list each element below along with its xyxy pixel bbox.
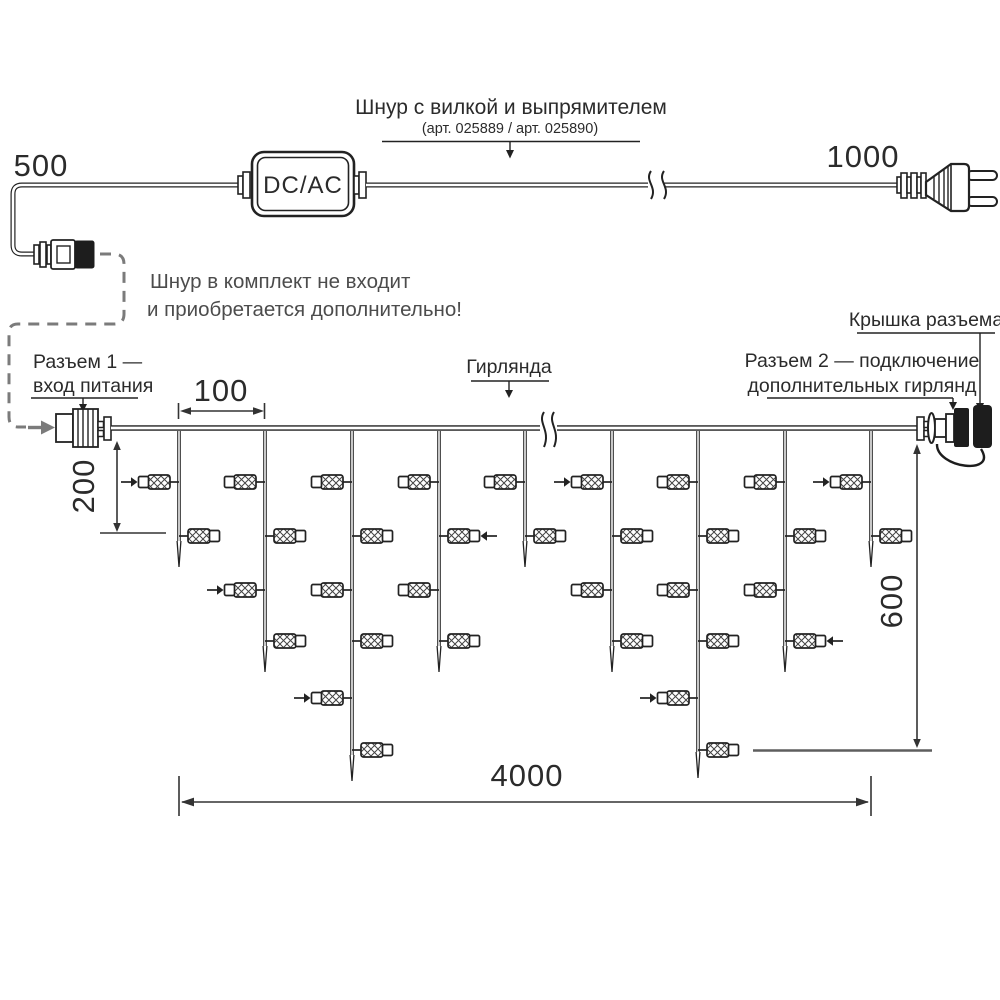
garland-callout: Гирлянда bbox=[466, 356, 552, 398]
garland-drop bbox=[121, 431, 220, 567]
lamp-icon bbox=[352, 743, 393, 757]
dashed-connection-path bbox=[9, 254, 124, 435]
lamp-icon bbox=[265, 529, 306, 543]
adapter-label: DC/AC bbox=[263, 172, 343, 199]
garland-drop bbox=[485, 431, 566, 567]
lamp-icon bbox=[225, 475, 266, 489]
dim-cord-left-value: 500 bbox=[14, 148, 69, 183]
note-line1: Шнур в комплект не входит bbox=[150, 270, 411, 293]
cord-title: Шнур с вилкой и выпрямителем bbox=[355, 96, 667, 119]
garland-drop bbox=[813, 431, 912, 567]
lamp-icon bbox=[572, 475, 613, 489]
lamp-icon bbox=[439, 529, 480, 543]
drop-needle-tip bbox=[610, 646, 614, 672]
garland-drop bbox=[207, 431, 306, 672]
lamp-icon bbox=[698, 634, 739, 648]
connector2-callout: Разъем 2 — подключение дополнительных ги… bbox=[745, 350, 980, 410]
cord-break-icon bbox=[649, 171, 666, 199]
lamp-icon bbox=[352, 529, 393, 543]
connector2-label-line1: Разъем 2 — подключение bbox=[745, 350, 980, 372]
dim-600-value: 600 bbox=[874, 574, 909, 629]
gray-arrowhead-icon bbox=[41, 421, 55, 435]
garland-connector2 bbox=[917, 405, 992, 466]
callout-arrowhead-icon bbox=[506, 150, 514, 159]
dim-cord-right-value: 1000 bbox=[827, 139, 900, 174]
lamp-icon bbox=[225, 583, 266, 597]
lamp-icon bbox=[658, 475, 699, 489]
garland-drop bbox=[554, 431, 653, 672]
connector1-callout: Разъем 1 — вход питания bbox=[31, 351, 153, 412]
lamp-icon bbox=[658, 691, 699, 705]
connector2-label-line2: дополнительных гирлянд bbox=[748, 375, 978, 397]
connector1-label-line2: вход питания bbox=[33, 375, 153, 397]
diagram-canvas: Шнур с вилкой и выпрямителем (арт. 02588… bbox=[0, 0, 1000, 1000]
garland-diagram: Шнур с вилкой и выпрямителем (арт. 02588… bbox=[0, 0, 1000, 1000]
lamp-icon bbox=[399, 475, 440, 489]
drop-needle-tip bbox=[869, 541, 873, 567]
lamp-icon bbox=[658, 583, 699, 597]
flash-arrow-icon bbox=[554, 477, 571, 487]
connector1-label-line1: Разъем 1 — bbox=[33, 351, 143, 373]
cord-subtitle: (арт. 025889 / арт. 025890) bbox=[422, 121, 598, 137]
garland-drop bbox=[399, 431, 498, 672]
flash-arrow-icon bbox=[640, 693, 657, 703]
lamp-icon bbox=[785, 529, 826, 543]
dim-4000-value: 4000 bbox=[491, 758, 564, 793]
lamp-icon bbox=[265, 634, 306, 648]
flash-arrow-icon bbox=[827, 636, 844, 646]
drop-needle-tip bbox=[350, 755, 354, 781]
lamp-icon bbox=[612, 634, 653, 648]
lamp-icon bbox=[572, 583, 613, 597]
dim-100: 100 bbox=[179, 373, 265, 419]
drop-needle-tip bbox=[696, 752, 700, 778]
drop-needle-tip bbox=[523, 541, 527, 567]
lamp-icon bbox=[179, 529, 220, 543]
garland-label: Гирлянда bbox=[466, 356, 552, 378]
lamp-icon bbox=[745, 475, 786, 489]
lamp-icon bbox=[612, 529, 653, 543]
lamp-icon bbox=[399, 583, 440, 597]
cord-end-connector bbox=[34, 240, 94, 269]
dim-100-value: 100 bbox=[194, 373, 249, 408]
dc-ac-adapter: DC/AC bbox=[238, 152, 366, 216]
garland-drop bbox=[640, 431, 739, 778]
garland-drop bbox=[745, 431, 844, 672]
dim-200-value: 200 bbox=[66, 459, 101, 514]
drop-needle-tip bbox=[263, 646, 267, 672]
flash-arrow-icon bbox=[121, 477, 138, 487]
cord-title-callout: Шнур с вилкой и выпрямителем (арт. 02588… bbox=[355, 96, 667, 159]
lamp-icon bbox=[312, 583, 353, 597]
lamp-icon bbox=[439, 634, 480, 648]
drop-needle-tip bbox=[177, 541, 181, 567]
dim-600: 600 bbox=[753, 444, 932, 751]
flash-arrow-icon bbox=[813, 477, 830, 487]
power-plug-icon bbox=[897, 164, 997, 211]
lamp-icon bbox=[525, 529, 566, 543]
flash-arrow-icon bbox=[294, 693, 311, 703]
lamp-icon bbox=[745, 583, 786, 597]
garland-connector1 bbox=[56, 409, 111, 447]
power-cord-left bbox=[13, 185, 240, 254]
dim-4000: 4000 bbox=[179, 758, 871, 816]
wire-break-icon bbox=[542, 412, 556, 447]
drop-needle-tip bbox=[783, 646, 787, 672]
lamp-icon bbox=[831, 475, 872, 489]
lamp-icon bbox=[785, 634, 826, 648]
lamp-icon bbox=[312, 691, 353, 705]
flash-arrow-icon bbox=[481, 531, 498, 541]
lamp-icon bbox=[352, 634, 393, 648]
lamp-icon bbox=[871, 529, 912, 543]
lamp-icon bbox=[312, 475, 353, 489]
drop-needle-tip bbox=[437, 646, 441, 672]
lamp-icon bbox=[139, 475, 180, 489]
lamp-icon bbox=[698, 529, 739, 543]
flash-arrow-icon bbox=[207, 585, 224, 595]
note-text: Шнур в комплект не входит и приобретаетс… bbox=[147, 270, 462, 321]
lamp-icon bbox=[485, 475, 526, 489]
cap-label: Крышка разъема bbox=[849, 309, 1000, 331]
callout-arrowhead-icon bbox=[505, 390, 513, 398]
lamp-icon bbox=[698, 743, 739, 757]
garland-drops-layer bbox=[121, 431, 912, 781]
connector-cap bbox=[973, 405, 992, 448]
note-line2: и приобретается дополнительно! bbox=[147, 298, 462, 321]
garland-drop bbox=[294, 431, 393, 781]
